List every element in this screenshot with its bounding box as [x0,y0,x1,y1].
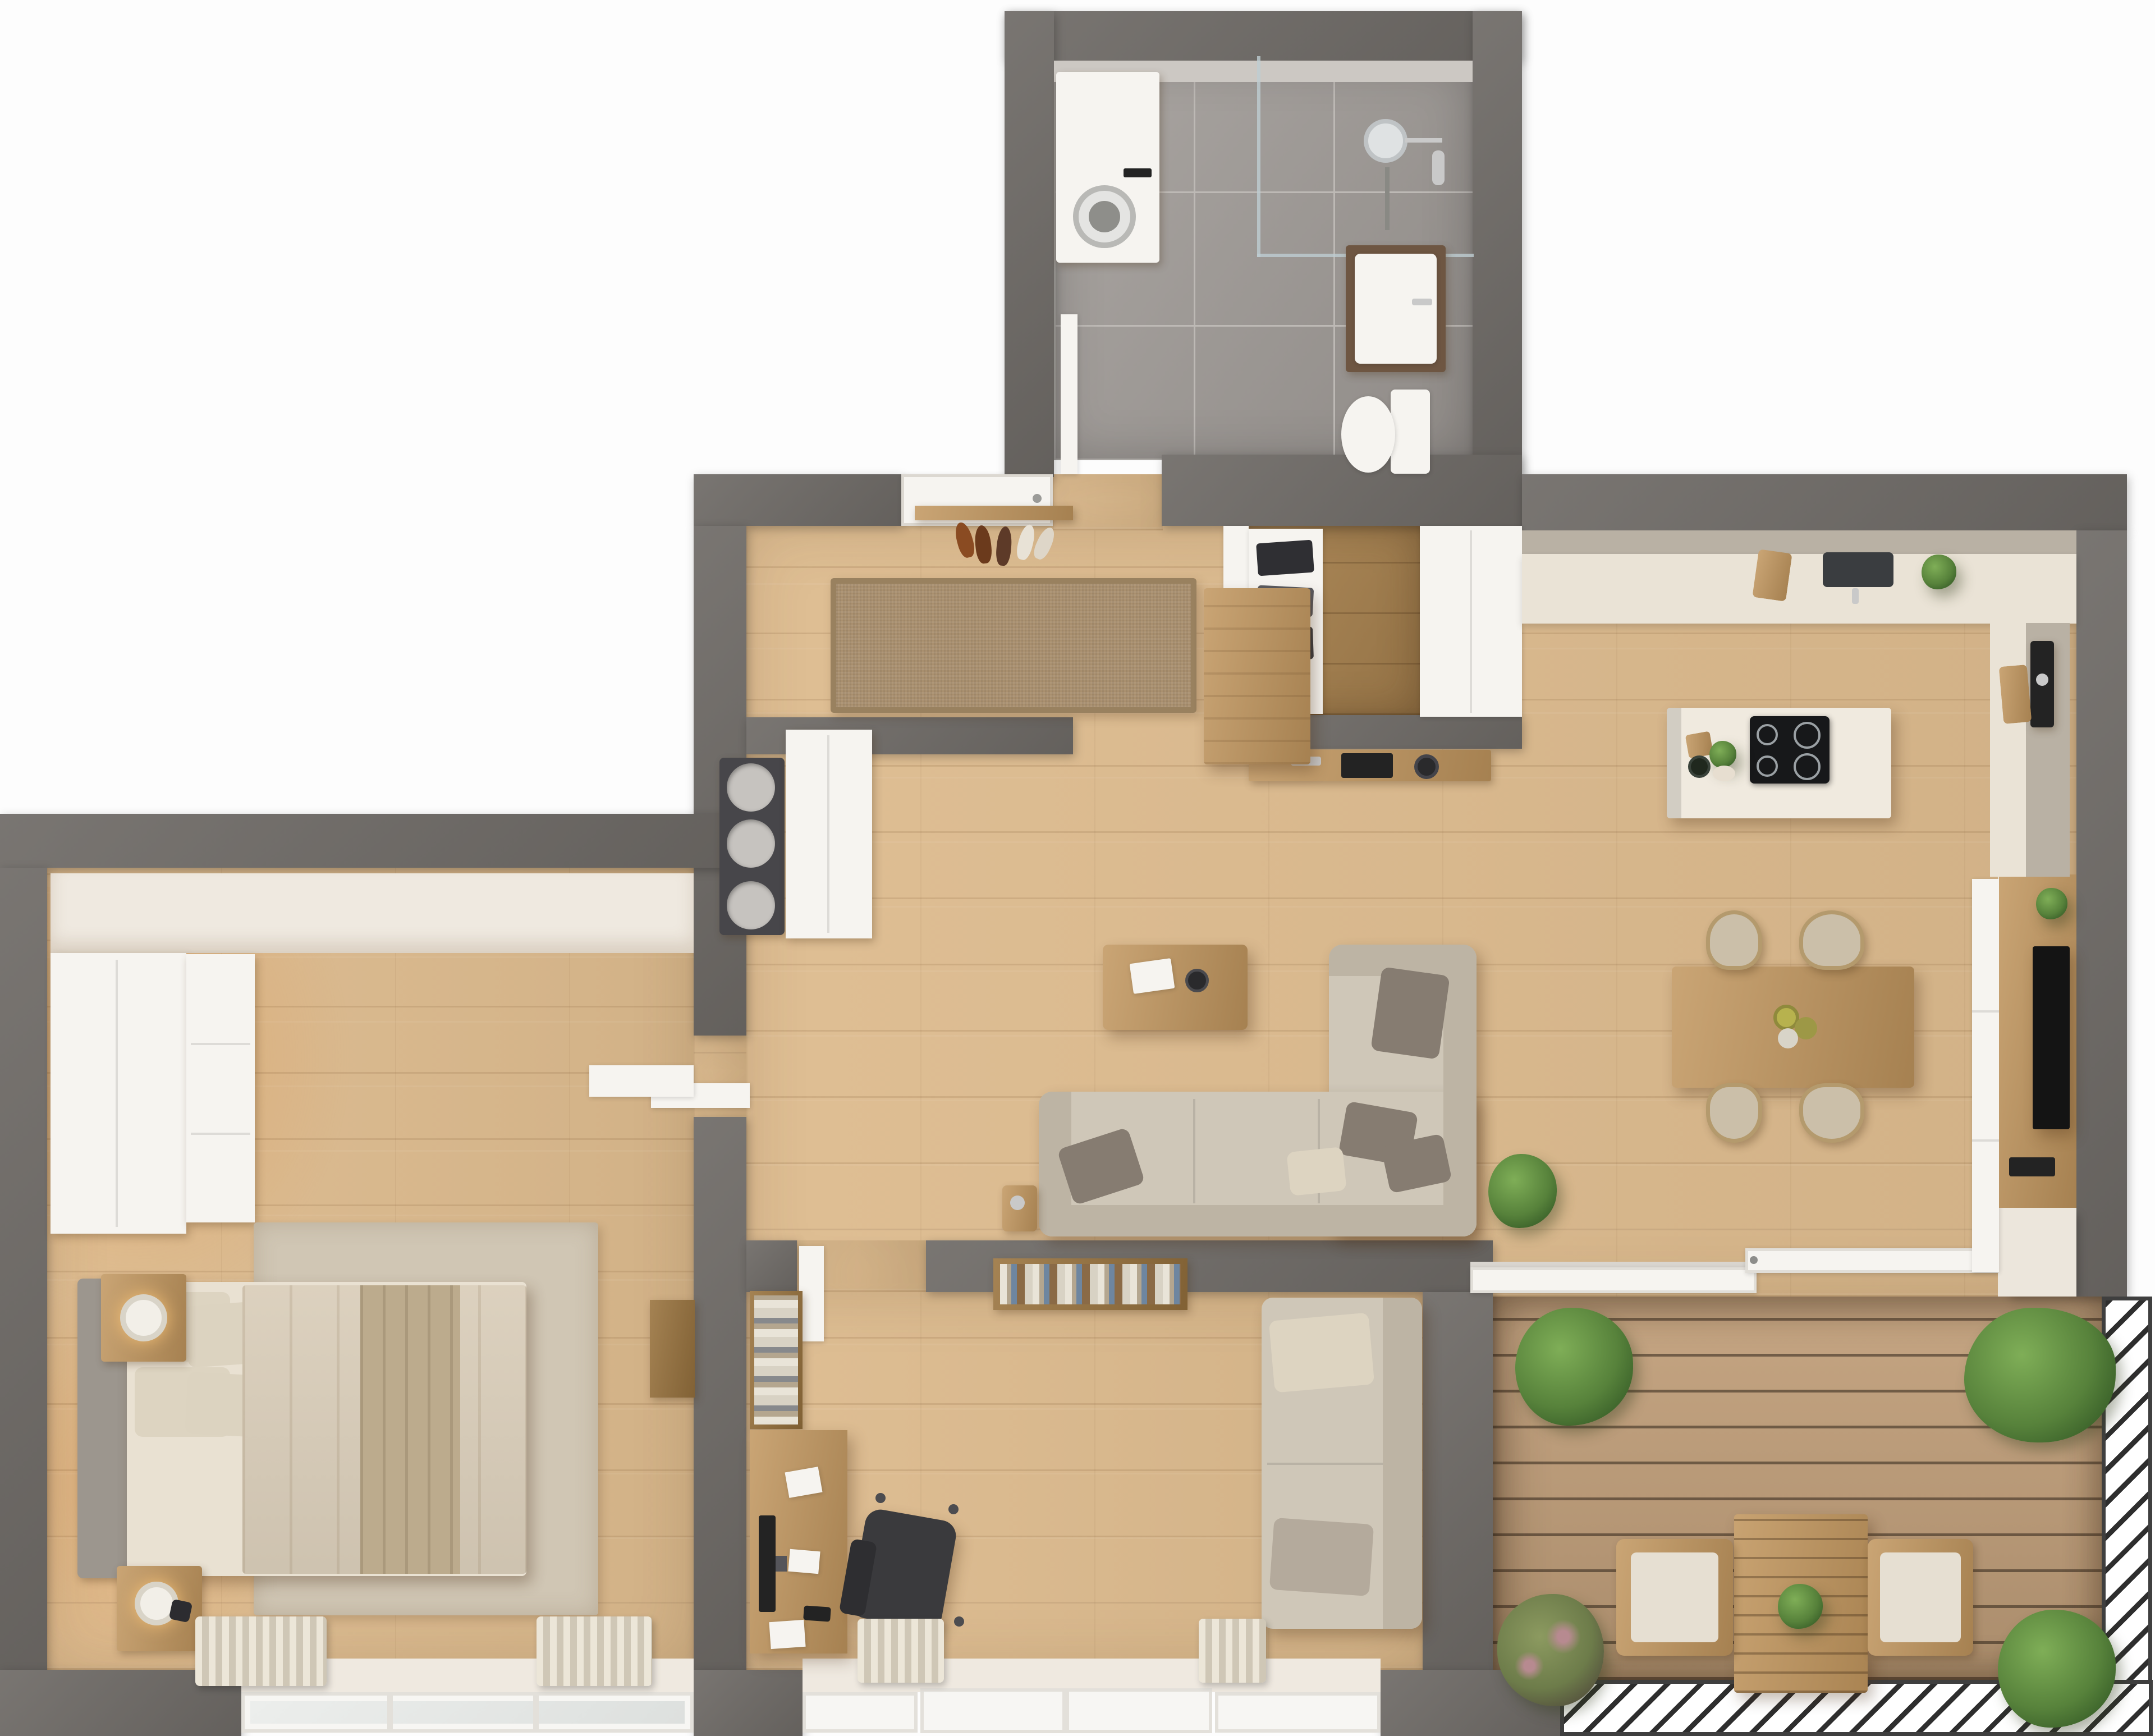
washbasin [1355,254,1437,364]
shoe-shelf [915,506,1073,520]
side-table-cup [1010,1195,1025,1210]
leaning-boards [1999,665,2032,724]
bedroom-curtain-right [537,1616,652,1686]
desk-monitor-stand [776,1556,787,1572]
balcony-slider-panel-left [1470,1267,1757,1293]
entry-door-handle [1033,494,1042,503]
wall-left-exterior [0,868,47,1736]
television [2033,946,2070,1129]
hob-burner-2 [1794,722,1821,749]
balcony-chair-right-cushion [1880,1552,1961,1642]
shower-head [1364,119,1407,163]
dining-centerpiece-2 [1795,1017,1817,1039]
office-window-right [1215,1692,1381,1733]
basin-faucet [1412,299,1432,305]
bathroom-door-leaf [1061,314,1077,474]
office-door-leaf [799,1246,824,1341]
hob-burner-3 [1757,755,1778,777]
kitchen-tall-cabinet-seam [1470,530,1472,713]
wall-bathroom-left [1005,11,1054,477]
island-garlic [1713,766,1735,781]
wardrobe-left-seam [116,960,118,1227]
wardrobe-drawer-column [186,954,255,1222]
wall-right-exterior [2076,530,2127,1297]
sofa-chaise-backrest [1443,945,1477,1236]
hob-burner-4 [1794,753,1821,780]
office-chair-wheel-2 [948,1504,959,1514]
daybed-seam [1267,1463,1383,1465]
hall-rug [831,578,1196,713]
sofa-seat-seam-1 [1193,1099,1195,1203]
bedroom-corner-shelf [589,1065,694,1097]
washing-machine-drum-inner [1089,201,1120,232]
sofa-pillow-light [1286,1147,1347,1196]
office-daybed-backrest [1383,1298,1422,1629]
bedroom-top-band [51,873,694,953]
console-round-tray [1414,754,1439,779]
bed-throw-blanket [360,1285,460,1574]
dining-chair-bottom-right [1799,1083,1864,1143]
office-chair-wheel-1 [875,1493,886,1503]
wall-pillar-bedroom-office [694,1670,803,1736]
kitchen-sink [1823,552,1893,587]
bedroom-curtain-left [195,1616,327,1686]
drawer-seam-2 [191,1133,250,1135]
bedroom-window-mullion [387,1692,393,1733]
drawer-seam-1 [191,1043,250,1045]
sofa-main-backrest [1039,1205,1477,1236]
shower-drain [1385,167,1390,230]
dining-chair-top-right [1799,910,1864,970]
dining-chair-bottom-left [1706,1083,1762,1143]
desk-monitor [759,1515,776,1612]
coffee-table-book [1130,958,1175,994]
media-device [2009,1157,2055,1176]
desk-photo [769,1620,805,1649]
wall-office-balcony [1423,1292,1493,1670]
coffee-machine-detail [2036,674,2048,686]
office-french-door-divider [1062,1688,1069,1733]
coffee-table [1103,945,1248,1030]
kitchen-cutting-board [1752,549,1792,602]
hall-sideboard-seam [827,735,829,933]
console-laptop [1341,753,1393,778]
toilet-tank [1391,390,1430,474]
nightstand-clock [169,1599,193,1623]
bathroom-door-floor-gap [1053,474,1163,530]
wardrobe-left [51,953,186,1234]
toilet-bowl [1341,396,1395,473]
washing-machine-panel [1124,168,1152,177]
balcony-chair-left-cushion [1631,1552,1718,1642]
cabinet-knob-1 [727,763,775,812]
tv-cabinet-seam-1 [1972,1010,1999,1013]
office-bookshelf-books [754,1295,798,1424]
hob-burner-1 [1757,724,1778,745]
bedroom-dresser [650,1300,695,1398]
office-wall-shelf-books [1000,1264,1181,1304]
coffee-table-bowl [1185,969,1209,992]
kitchen-counter-top-run [1522,554,2076,624]
wall-bathroom-right [1473,11,1522,477]
shower-hand-sprayer [1432,150,1445,185]
lamp-top [120,1294,167,1341]
kitchen-upper-cabinets [1522,530,2076,554]
bedroom-window-mullion-2 [533,1692,539,1733]
floor-plan-canvas [0,0,2155,1736]
sink-faucet [1852,588,1859,604]
dining-chair-top-left [1706,910,1762,970]
wall-kitchen-top [1522,474,2127,530]
wall-bedroom-hall-lower [694,1117,746,1670]
cabinet-knob-3 [727,881,775,929]
bedroom-window-glass [250,1701,685,1724]
daybed-pillow-top [1269,1312,1374,1393]
kitchen-island-side-shade [1667,708,1681,818]
dining-centerpiece-3 [1778,1028,1798,1048]
office-curtain-right [1199,1619,1266,1683]
wall-bathroom-top [1005,11,1522,61]
desk-phone [803,1605,831,1622]
wall-hall-top [694,474,901,526]
tv-side-cabinets [1972,879,1999,1272]
office-curtain-left [858,1619,944,1683]
island-bowl [1688,755,1711,778]
closet-garment-1 [1256,540,1314,576]
desk-paper-2 [788,1549,820,1574]
balcony-palm-top-right [1964,1308,2116,1442]
wall-bedroom-top [0,814,746,868]
shower-glass-vertical [1257,56,1260,257]
office-window-left [803,1692,918,1733]
balcony-slider-handle [1750,1256,1758,1264]
cabinet-knob-2 [727,819,775,868]
daybed-pillow-bottom [1269,1518,1374,1596]
wall-bathroom-bottom [1162,455,1522,526]
sofa-pillow-dark-3 [1370,967,1450,1060]
tv-cabinet-seam-2 [1972,1139,1999,1142]
office-chair-wheel-3 [954,1616,964,1627]
wall-office-top-left [746,1240,797,1292]
hall-bench [1204,588,1310,764]
balcony-plant-bottom-left [1497,1594,1604,1706]
shower-arm [1405,138,1442,143]
